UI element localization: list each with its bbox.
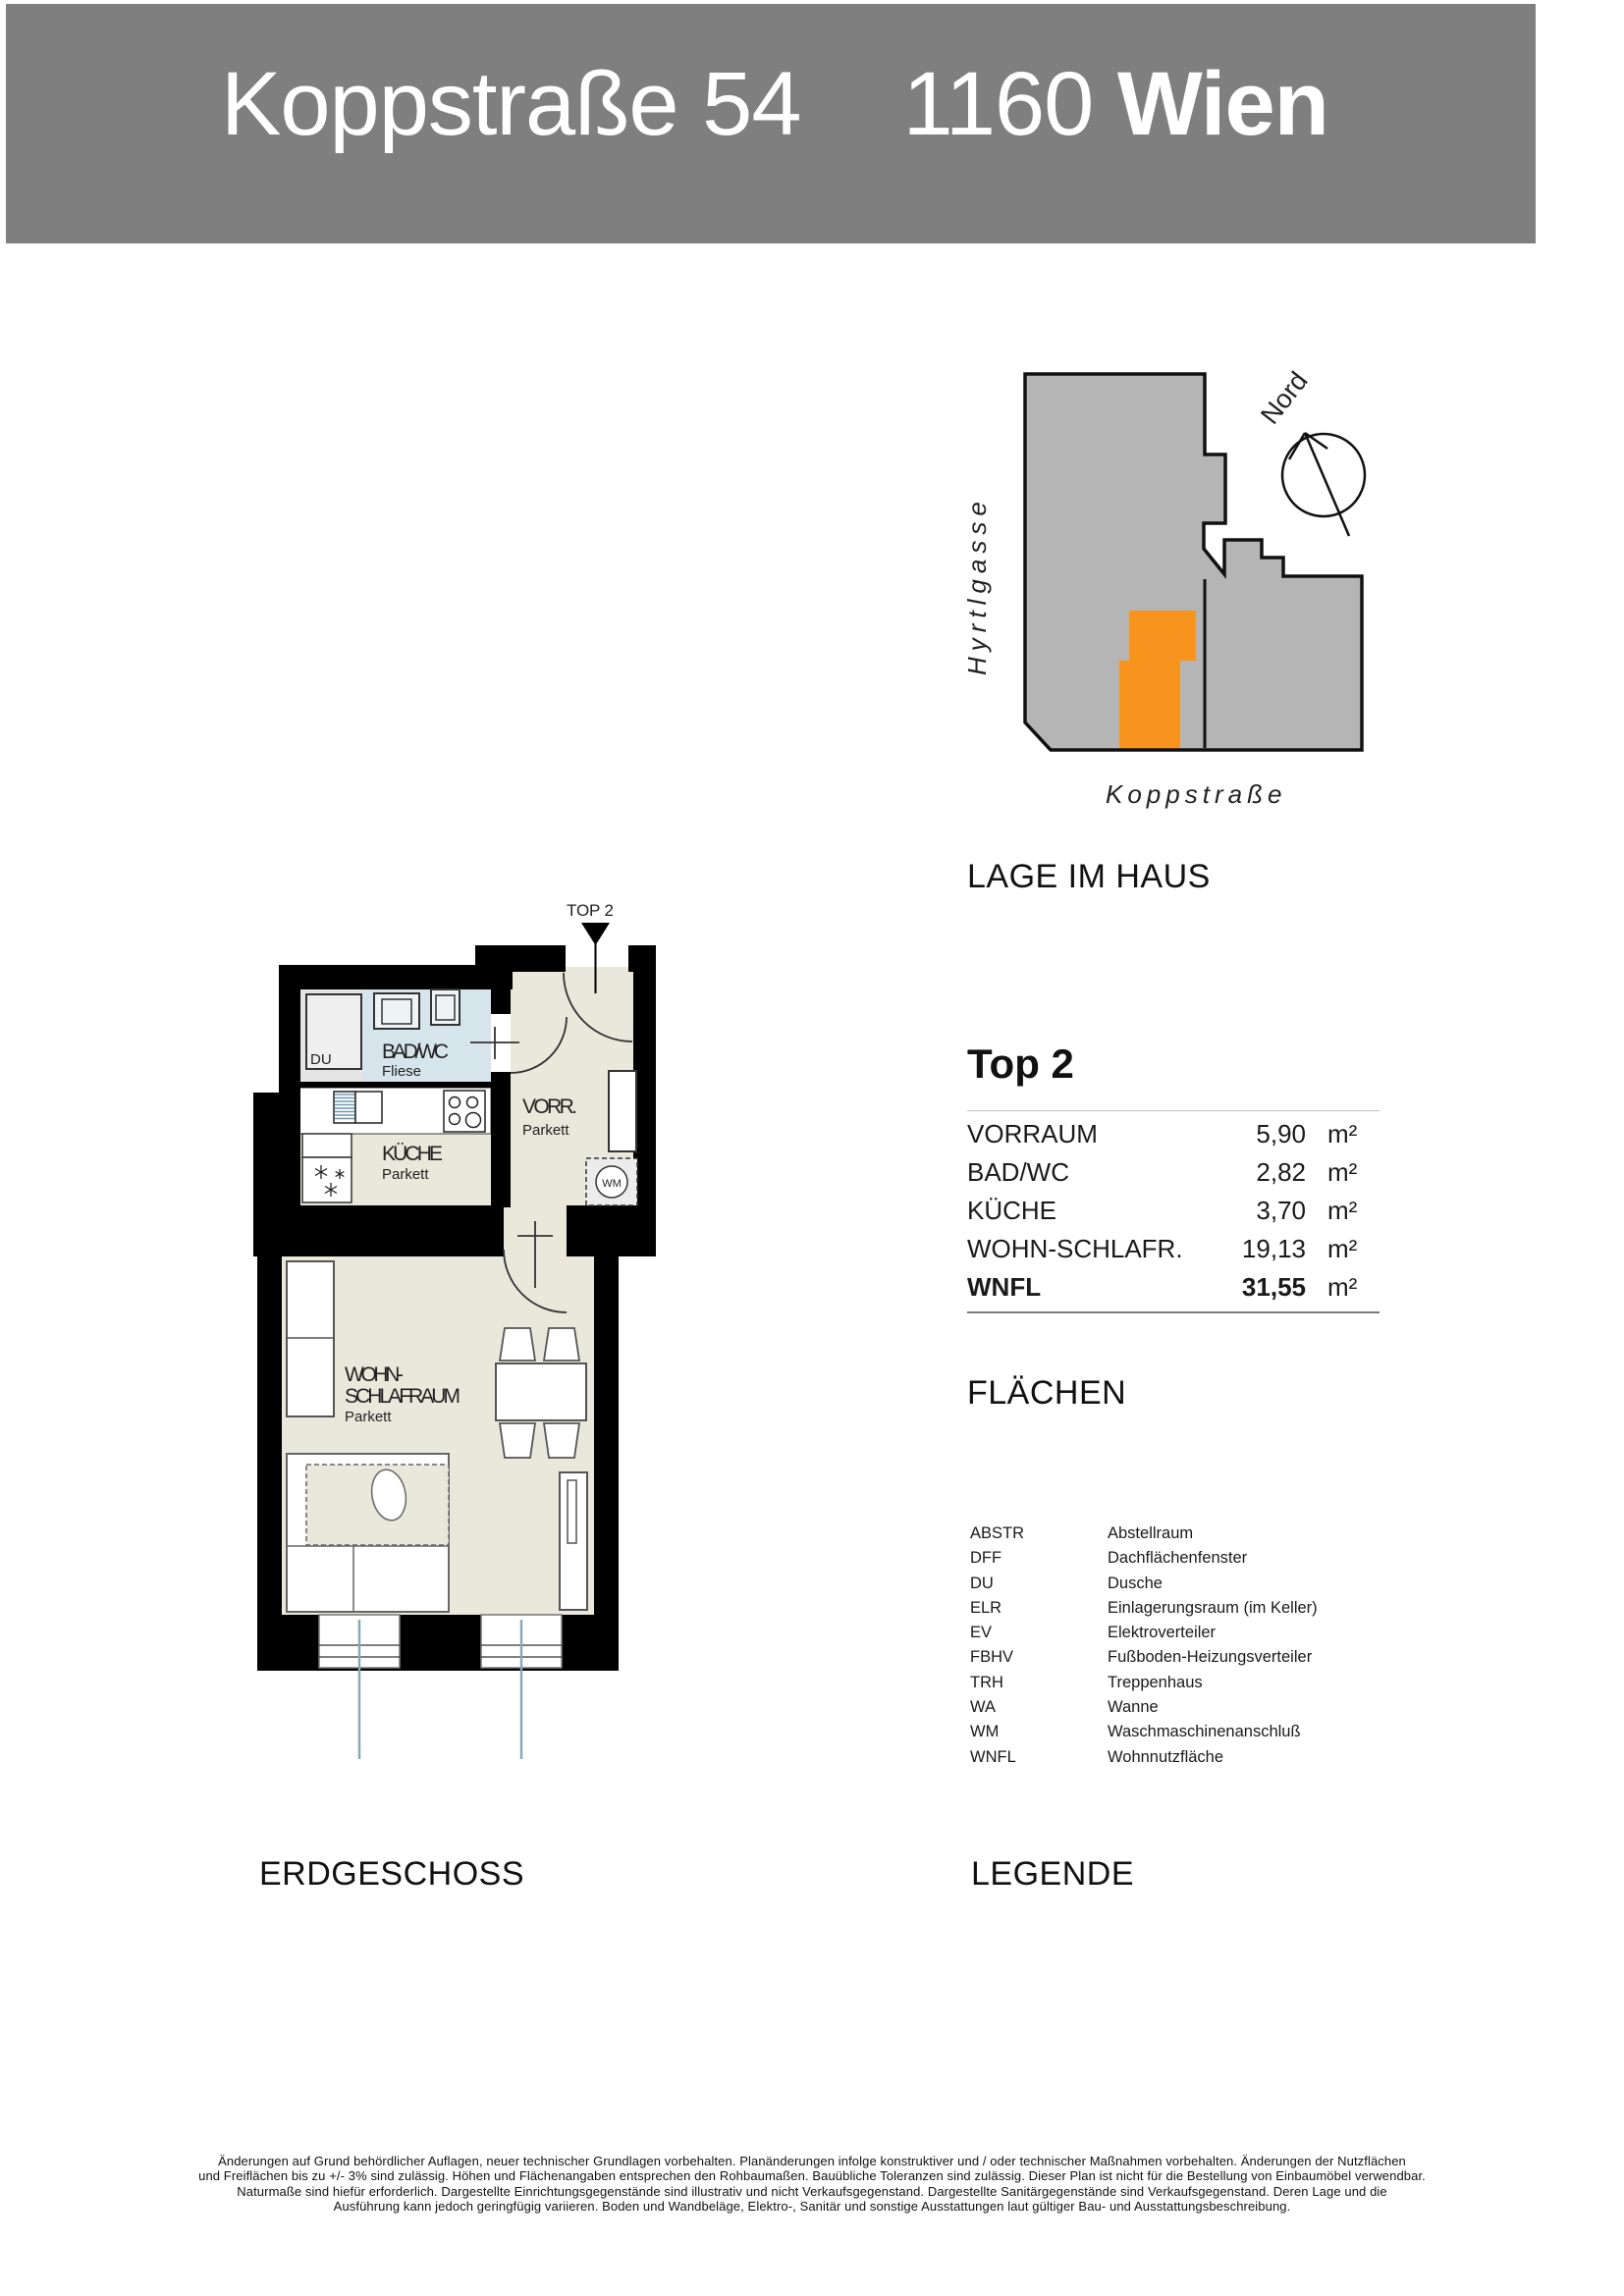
header-banner: Koppstraße 541160 Wien (6, 4, 1536, 243)
legend-item: ABSTRAbstellraum (970, 1522, 1382, 1546)
table-row: BAD/WC 2,82 m² (967, 1153, 1380, 1192)
street-label-koppstrasse: Koppstraße (1106, 779, 1286, 809)
bad-label: BAD/WC (382, 1041, 449, 1063)
table-rule-bottom (967, 1311, 1380, 1313)
legend-item: DFFDachflächenfenster (970, 1546, 1382, 1571)
wohn-label-1: WOHN- (345, 1363, 404, 1386)
wohn-label-2: SCHLAFRAUM (345, 1385, 460, 1408)
unit-marker-label: TOP 2 (567, 901, 614, 920)
page: Koppstraße 541160 Wien Nord Hyrtlgasse K… (0, 0, 1624, 2296)
legend-item: WMWaschmaschinenanschluß (970, 1720, 1382, 1744)
table-row: WOHN-SCHLAFR. 19,13 m² (967, 1230, 1380, 1268)
footer-line: Ausführung kann jedoch geringfügig varii… (61, 2199, 1563, 2214)
shelf-cabinet (560, 1472, 587, 1610)
table-row: KÜCHE 3,70 m² (967, 1192, 1380, 1230)
footer-disclaimer: Änderungen auf Grund behördlicher Auflag… (61, 2154, 1563, 2214)
du-label: DU (310, 1051, 332, 1068)
legend-item: FBHVFußboden-Heizungsverteiler (970, 1645, 1382, 1670)
area-table: VORRAUM 5,90 m² BAD/WC 2,82 m² KÜCHE 3,7… (967, 1115, 1380, 1307)
unit-title: Top 2 (967, 1041, 1074, 1088)
table-row-total: WNFL 31,55 m² (967, 1268, 1380, 1307)
footer-line: Änderungen auf Grund behördlicher Auflag… (61, 2154, 1563, 2168)
kueche-label: KÜCHE (382, 1143, 443, 1165)
legend-item: WAWanne (970, 1695, 1382, 1720)
header-city: 1160 Wien (902, 54, 1327, 154)
legend-item: WNFLWohnnutzfläche (970, 1745, 1382, 1770)
header-title: Koppstraße 541160 Wien (221, 53, 1328, 156)
floor-label: ERDGESCHOSS (259, 1855, 524, 1894)
footer-line: Naturmaße sind hiefür erforderlich. Darg… (61, 2184, 1563, 2199)
dining-table (496, 1363, 586, 1420)
legend-item: TRHTreppenhaus (970, 1671, 1382, 1695)
bad-floor-label: Fliese (382, 1063, 421, 1080)
site-plan-heading: LAGE IM HAUS (967, 858, 1211, 896)
legend-item: DUDusche (970, 1572, 1382, 1596)
vorraum-closet (609, 1071, 636, 1151)
kueche-floor-label: Parkett (382, 1166, 429, 1183)
header-street: Koppstraße 54 (221, 54, 800, 154)
legend-list: ABSTRAbstellraum DFFDachflächenfenster D… (970, 1522, 1382, 1770)
fridge (302, 1134, 352, 1157)
legend-item: EVElektroverteiler (970, 1621, 1382, 1645)
areas-heading: FLÄCHEN (967, 1374, 1126, 1413)
legend-item: ELREinlagerungsraum (im Keller) (970, 1596, 1382, 1621)
wohn-floor-label: Parkett (345, 1409, 392, 1425)
site-building-outline (1025, 374, 1362, 750)
vorraum-floor-label: Parkett (522, 1122, 569, 1139)
wm-label: WM (602, 1178, 622, 1190)
sink-drainer (355, 1092, 382, 1123)
site-plan: Nord Hyrtlgasse Koppstraße (923, 353, 1434, 815)
table-rule-top (967, 1110, 1380, 1111)
legend-heading: LEGENDE (971, 1855, 1134, 1894)
vorraum-label: VORR. (522, 1095, 577, 1118)
table-row: VORRAUM 5,90 m² (967, 1115, 1380, 1153)
compass-north-label: Nord (1255, 366, 1314, 430)
wardrobe (287, 1261, 334, 1416)
compass-icon: Nord (1255, 366, 1365, 536)
footer-line: und Freiflächen bis zu +/- 3% sind zuläs… (61, 2168, 1563, 2183)
floor-plan: TOP 2 (236, 879, 707, 1777)
street-label-hyrtlgasse: Hyrtlgasse (962, 496, 992, 675)
freezer (302, 1157, 352, 1202)
